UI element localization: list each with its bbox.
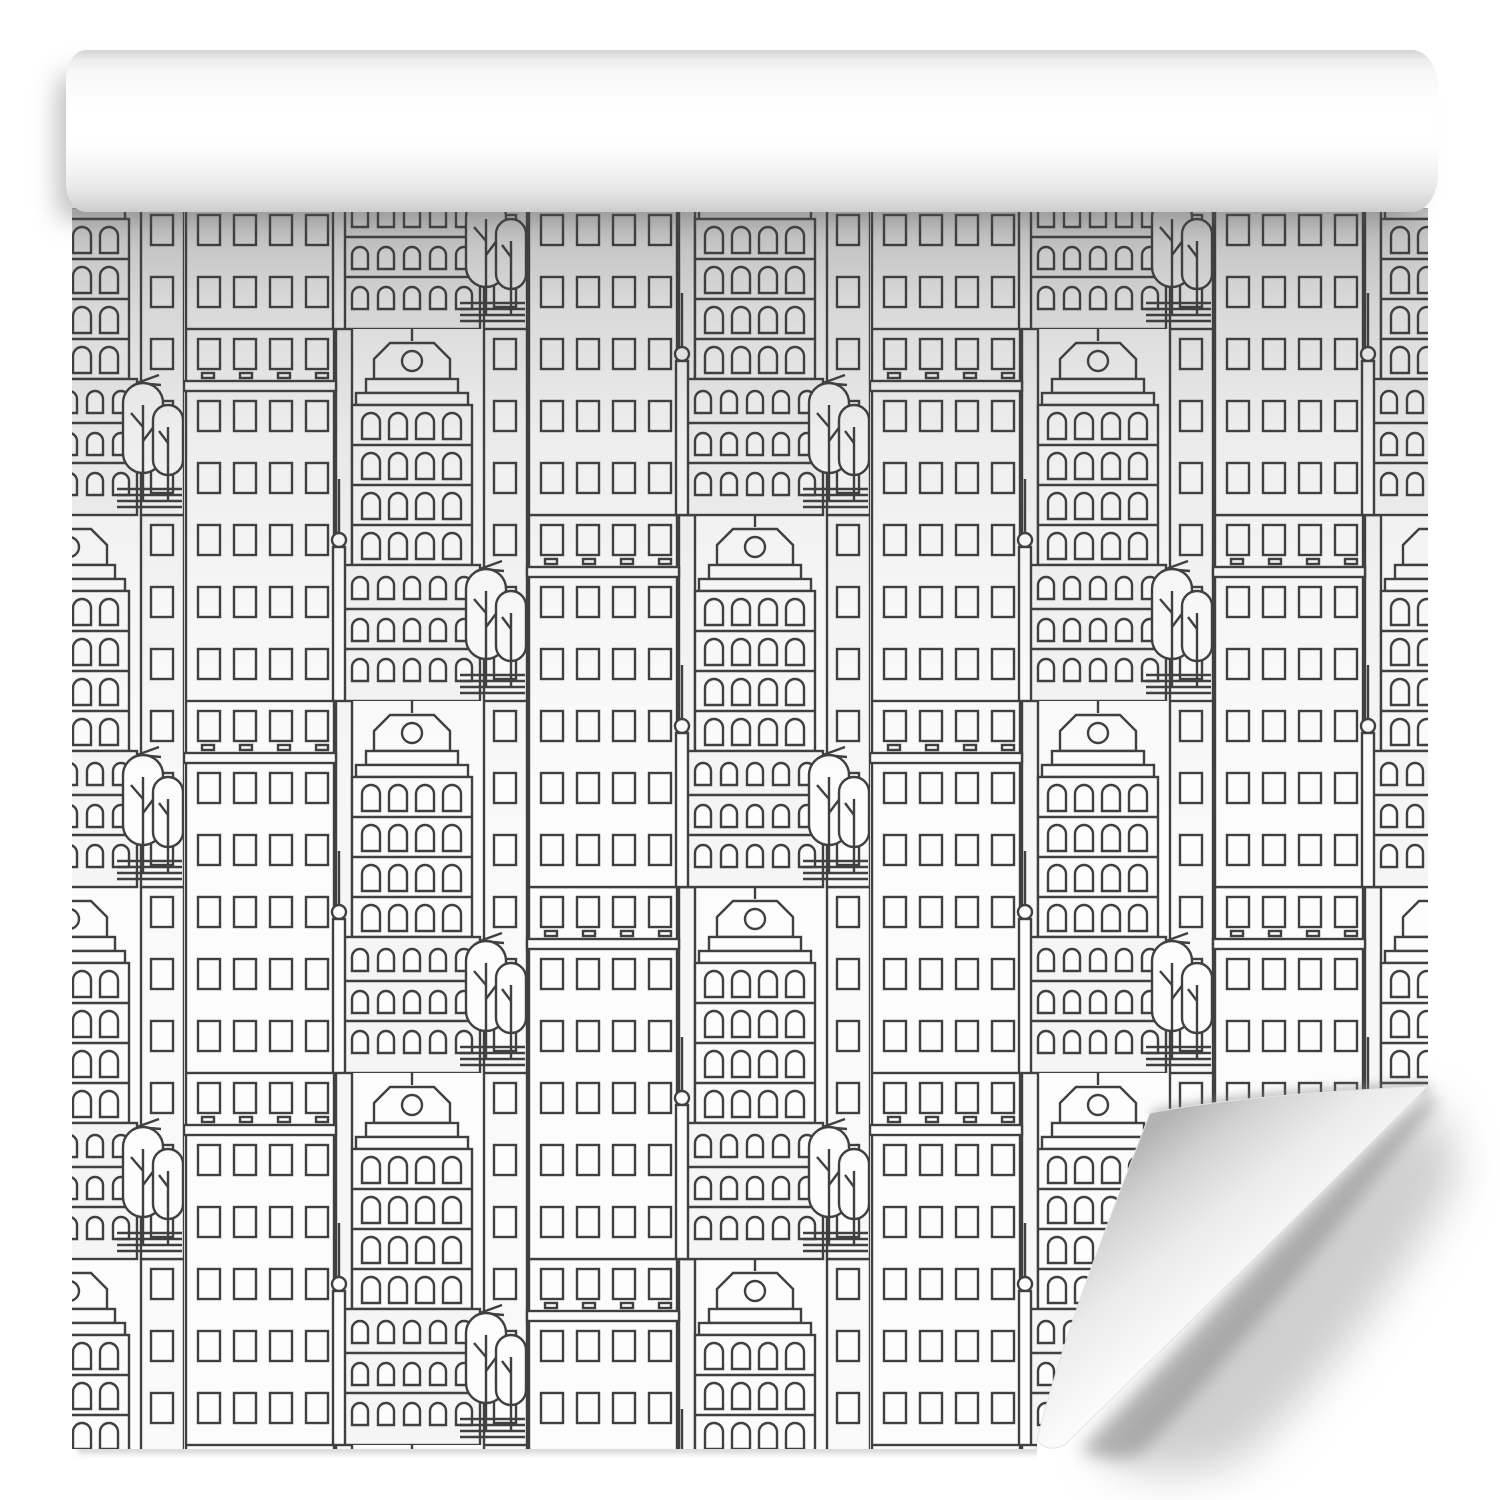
product-photo — [0, 0, 1500, 1500]
wallpaper-roll — [66, 50, 1438, 212]
page-curl-svg — [980, 1030, 1500, 1500]
page-curl — [980, 1030, 1500, 1500]
